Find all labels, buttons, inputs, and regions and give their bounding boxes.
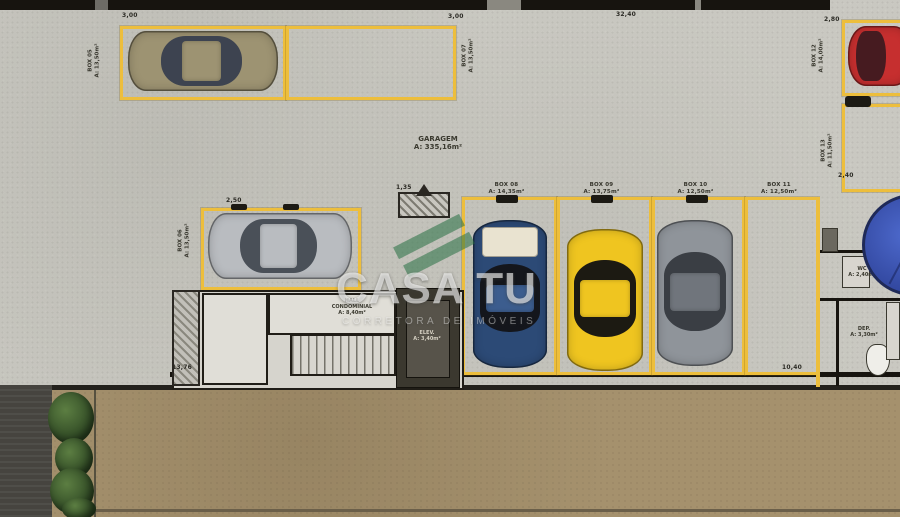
box-08-label: BOX 08 A: 14,35m² — [462, 182, 551, 195]
dim-box06-top: 2,50 — [226, 197, 242, 204]
wheel-stop — [591, 195, 613, 203]
box-13-area: A: 11,50m² — [827, 119, 834, 183]
dim-bottom-left: 13,76 — [172, 364, 192, 371]
car-gray-top-view — [657, 220, 733, 366]
box-07-label: BOX 07 A: 13,50m² — [462, 24, 475, 88]
car-yellow-top-view — [567, 229, 643, 371]
car-olive-top-view — [128, 31, 278, 91]
dim-top-left: 3,00 — [122, 12, 138, 19]
driveway-area — [52, 390, 900, 517]
right-partition-wall — [820, 298, 900, 301]
counter-fixture — [886, 302, 900, 360]
right-wing-wall-line — [816, 197, 820, 387]
parking-box-07 — [286, 26, 456, 100]
box-12-label: BOX 12 A: 14,00m² — [812, 24, 825, 88]
watermark-title: CASA TU — [336, 264, 537, 314]
box-10-label: BOX 10 A: 12,50m² — [652, 182, 739, 195]
water-heater — [822, 228, 838, 252]
bush — [48, 392, 94, 444]
bush — [62, 498, 96, 517]
box-09-area: A: 13,75m² — [557, 189, 646, 196]
garage-label: GARAGEM A: 335,16m² — [378, 135, 498, 151]
wheel-stop — [686, 195, 708, 203]
box-06-label: BOX 06 A: 13,50m² — [178, 209, 191, 273]
planter-border — [94, 390, 96, 517]
car-silver-top-view — [208, 213, 352, 279]
box-11-area: A: 12,50m² — [745, 189, 813, 196]
box-07-area: A: 13,50m² — [468, 24, 475, 88]
box-08-area: A: 14,35m² — [462, 189, 551, 196]
wheel-stop — [283, 204, 299, 210]
wheel-stop — [231, 204, 247, 210]
dim-top-mid: 3,00 — [448, 13, 464, 20]
box-09-label: BOX 09 A: 13,75m² — [557, 182, 646, 195]
car-roof — [670, 273, 720, 311]
car-glass — [856, 31, 887, 80]
car-roof — [182, 41, 221, 81]
staircase — [290, 334, 396, 376]
core-room — [202, 293, 268, 385]
triangle-marker — [416, 184, 432, 196]
wheel-stop — [496, 195, 518, 203]
sidewalk-strip — [0, 385, 52, 517]
watermark-subtitle: CORRETORA DE IMÓVEIS — [342, 316, 536, 327]
top-wall-joint — [695, 0, 701, 10]
elevator-label-line2: A: 3,40m² — [406, 336, 448, 342]
dim-top-span: 32,40 — [616, 11, 636, 18]
deposit-label: DEP. A: 3,30m² — [842, 326, 886, 338]
box-06-area: A: 13,50m² — [184, 209, 191, 273]
garage-floor-plan: HALL CONDOMINIAL A: 8,40m² ELEV. A: 3,40… — [0, 0, 900, 517]
motorcycle — [845, 96, 871, 107]
top-wall-opening — [487, 0, 521, 10]
car-roof — [260, 224, 297, 268]
box-13-label: BOX 13 A: 11,50m² — [821, 119, 834, 183]
top-wall — [0, 0, 830, 10]
parking-box-11 — [745, 197, 819, 375]
top-wall-gap — [95, 0, 108, 10]
box-10-area: A: 12,50m² — [652, 189, 739, 196]
hatched-wall — [172, 290, 200, 386]
right-bottom-wall — [820, 372, 900, 377]
garage-name: GARAGEM — [378, 135, 498, 143]
elevator-label: ELEV. A: 3,40m² — [406, 330, 448, 342]
car-red-top-view — [848, 26, 900, 86]
box-05-label: BOX 05 A: 13,50m² — [88, 29, 101, 93]
box-05-area: A: 13,50m² — [94, 29, 101, 93]
deposit-label-line2: A: 3,30m² — [842, 332, 886, 338]
box-11-label: BOX 11 A: 12,50m² — [745, 182, 813, 195]
dim-top-right: 2,80 — [824, 16, 840, 23]
dim-core-top: 1,35 — [396, 184, 412, 191]
dim-box13-bottom: 2,40 — [838, 172, 854, 179]
garage-area: A: 335,16m² — [378, 143, 498, 151]
car-roof — [580, 280, 630, 317]
car-roof-panel — [482, 227, 538, 257]
driveway-edge-line — [95, 509, 900, 512]
dim-bottom-right: 10,40 — [782, 364, 802, 371]
box-12-area: A: 14,00m² — [818, 24, 825, 88]
